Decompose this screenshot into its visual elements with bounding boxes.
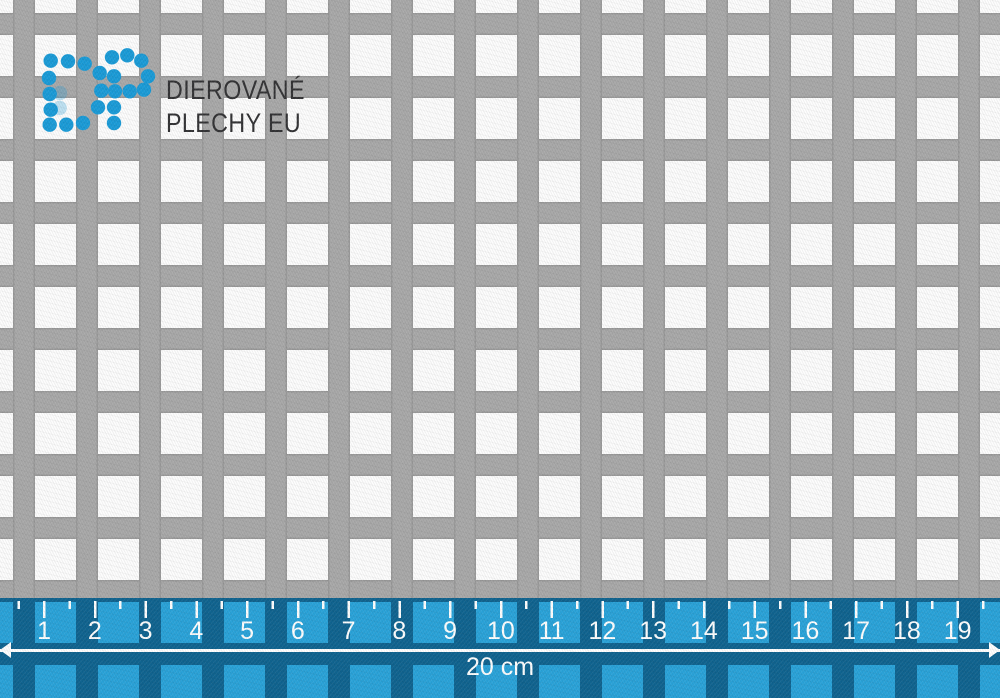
perforated-sheet-product-photo: DIEROVANÉ PLECHY EU 1 2 3 4 5 6 7 8 9 10… — [0, 0, 1000, 698]
logo-wordmark: DIEROVANÉ PLECHY EU — [166, 74, 305, 140]
ruler-length-label: 20 cm — [0, 653, 1000, 682]
ruler-tick-label: 11 — [539, 617, 565, 646]
ruler-tick-label: 16 — [791, 617, 819, 646]
logo-line2: PLECHY EU — [166, 107, 305, 140]
dp-dots-logo-icon — [38, 48, 156, 140]
ruler-tick-label: 8 — [392, 617, 406, 646]
ruler-tick-label: 9 — [443, 617, 457, 646]
ruler-tick-label: 4 — [189, 617, 203, 646]
ruler-tick-label: 15 — [741, 617, 769, 646]
ruler-minor-ticks — [0, 601, 1000, 609]
ruler-tick-label: 3 — [139, 617, 153, 646]
ruler-tick-label: 2 — [88, 617, 102, 646]
ruler-tick-label: 18 — [893, 617, 921, 646]
ruler-tick-label: 14 — [690, 617, 718, 646]
ruler-tick-label: 19 — [944, 617, 972, 646]
ruler-tick-label: 7 — [342, 617, 356, 646]
ruler-span-arrow-line — [0, 649, 1000, 652]
ruler-tick-label: 10 — [487, 617, 515, 646]
ruler-tick-label: 1 — [37, 617, 51, 646]
ruler-tick-label: 17 — [842, 617, 870, 646]
logo-line1: DIEROVANÉ — [166, 74, 305, 107]
measurement-ruler: 1 2 3 4 5 6 7 8 9 10 11 12 13 14 15 16 1… — [0, 598, 1000, 698]
brand-logo: DIEROVANÉ PLECHY EU — [38, 48, 328, 140]
ruler-tick-label: 13 — [639, 617, 667, 646]
ruler-tick-label: 12 — [588, 617, 616, 646]
ruler-tick-label: 6 — [291, 617, 305, 646]
ruler-tick-label: 5 — [240, 617, 254, 646]
